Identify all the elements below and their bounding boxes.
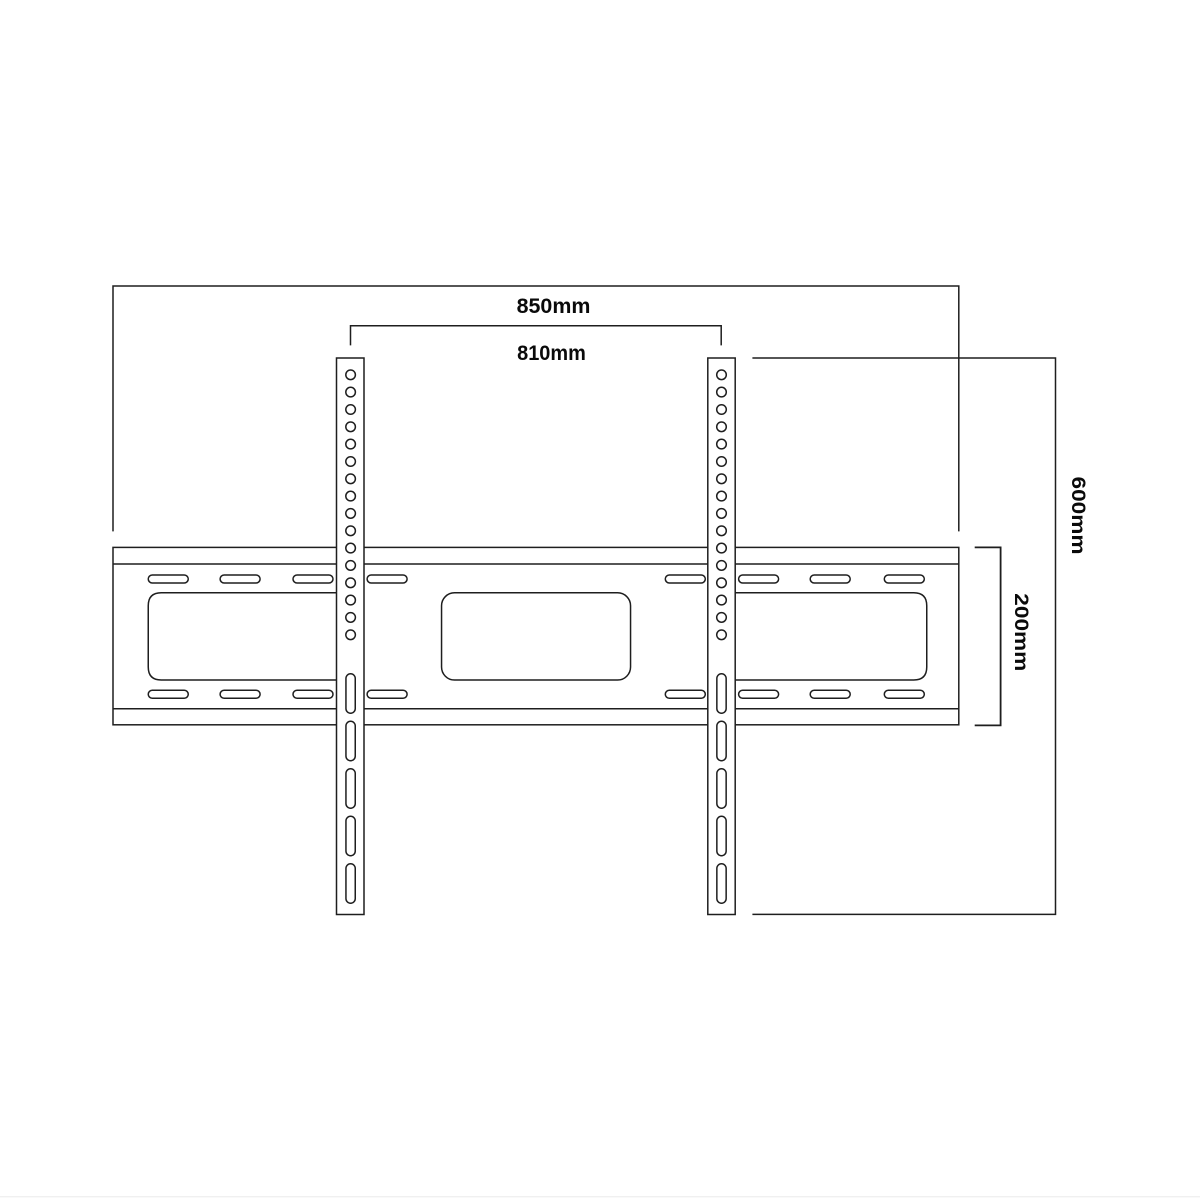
- svg-text:600mm: 600mm: [1067, 477, 1088, 555]
- svg-text:200mm: 200mm: [1010, 593, 1031, 671]
- svg-text:850mm: 850mm: [517, 295, 591, 318]
- svg-text:810mm: 810mm: [517, 342, 586, 365]
